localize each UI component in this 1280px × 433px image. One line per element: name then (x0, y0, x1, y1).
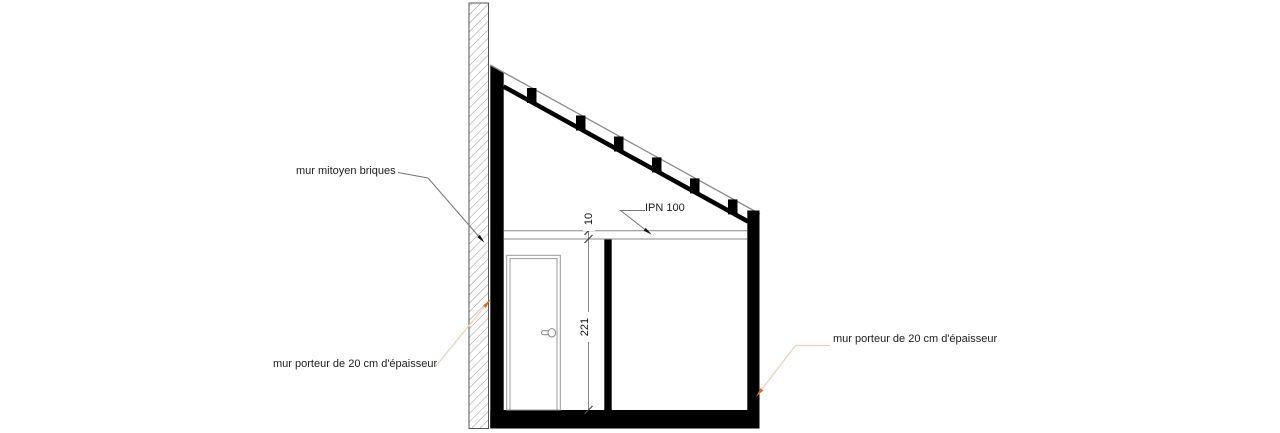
floor-slab (490, 410, 759, 429)
purlin-block (690, 178, 700, 193)
label-party-wall: mur mitoyen briques (296, 165, 396, 178)
dimension-beam-height: 10 (583, 207, 595, 231)
section-drawing-canvas: mur mitoyen briques mur porteur de 20 cm… (0, 0, 1280, 433)
purlin-block (527, 88, 537, 103)
label-beam: IPN 100 (645, 202, 685, 215)
dimension-room-height: 221 (579, 312, 591, 342)
right-bearing-wall (747, 211, 759, 429)
left-bearing-wall (490, 66, 503, 429)
section-drawing (0, 0, 1280, 433)
door-handle-rosette (548, 329, 556, 337)
purlin-block (614, 137, 624, 152)
right-wall-leader-line (759, 346, 830, 394)
roof-line (490, 65, 760, 214)
party-wall-hatch (469, 3, 489, 429)
rafter-line (504, 87, 749, 222)
label-bearing-wall-left: mur porteur de 20 cm d'épaisseur (273, 358, 437, 371)
purlin-block (576, 116, 586, 131)
interior-wall (604, 239, 611, 410)
purlin-block (652, 157, 662, 172)
purlin-block (728, 199, 738, 214)
label-bearing-wall-right: mur porteur de 20 cm d'épaisseur (833, 333, 997, 346)
